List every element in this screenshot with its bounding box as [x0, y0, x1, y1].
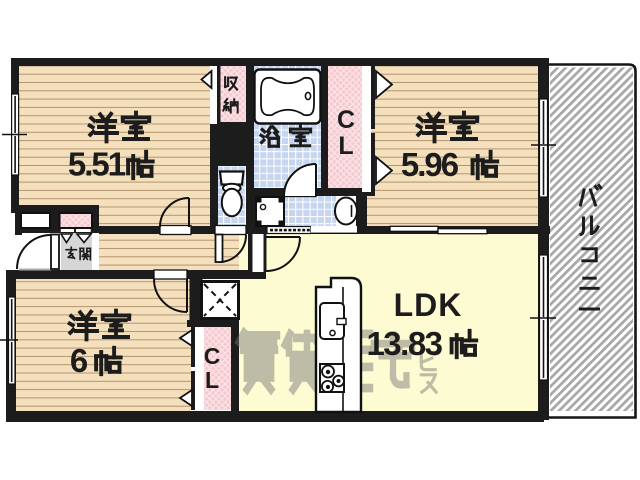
svg-text:C: C — [337, 106, 355, 134]
svg-text:5.51: 5.51 — [68, 146, 126, 183]
svg-text:LDK: LDK — [394, 287, 463, 323]
svg-text:13.83: 13.83 — [366, 325, 442, 362]
svg-text:6: 6 — [70, 342, 88, 379]
svg-text:C: C — [204, 343, 221, 369]
svg-text:L: L — [205, 367, 219, 393]
svg-text:5.96: 5.96 — [401, 146, 459, 183]
svg-text:L: L — [338, 132, 353, 160]
